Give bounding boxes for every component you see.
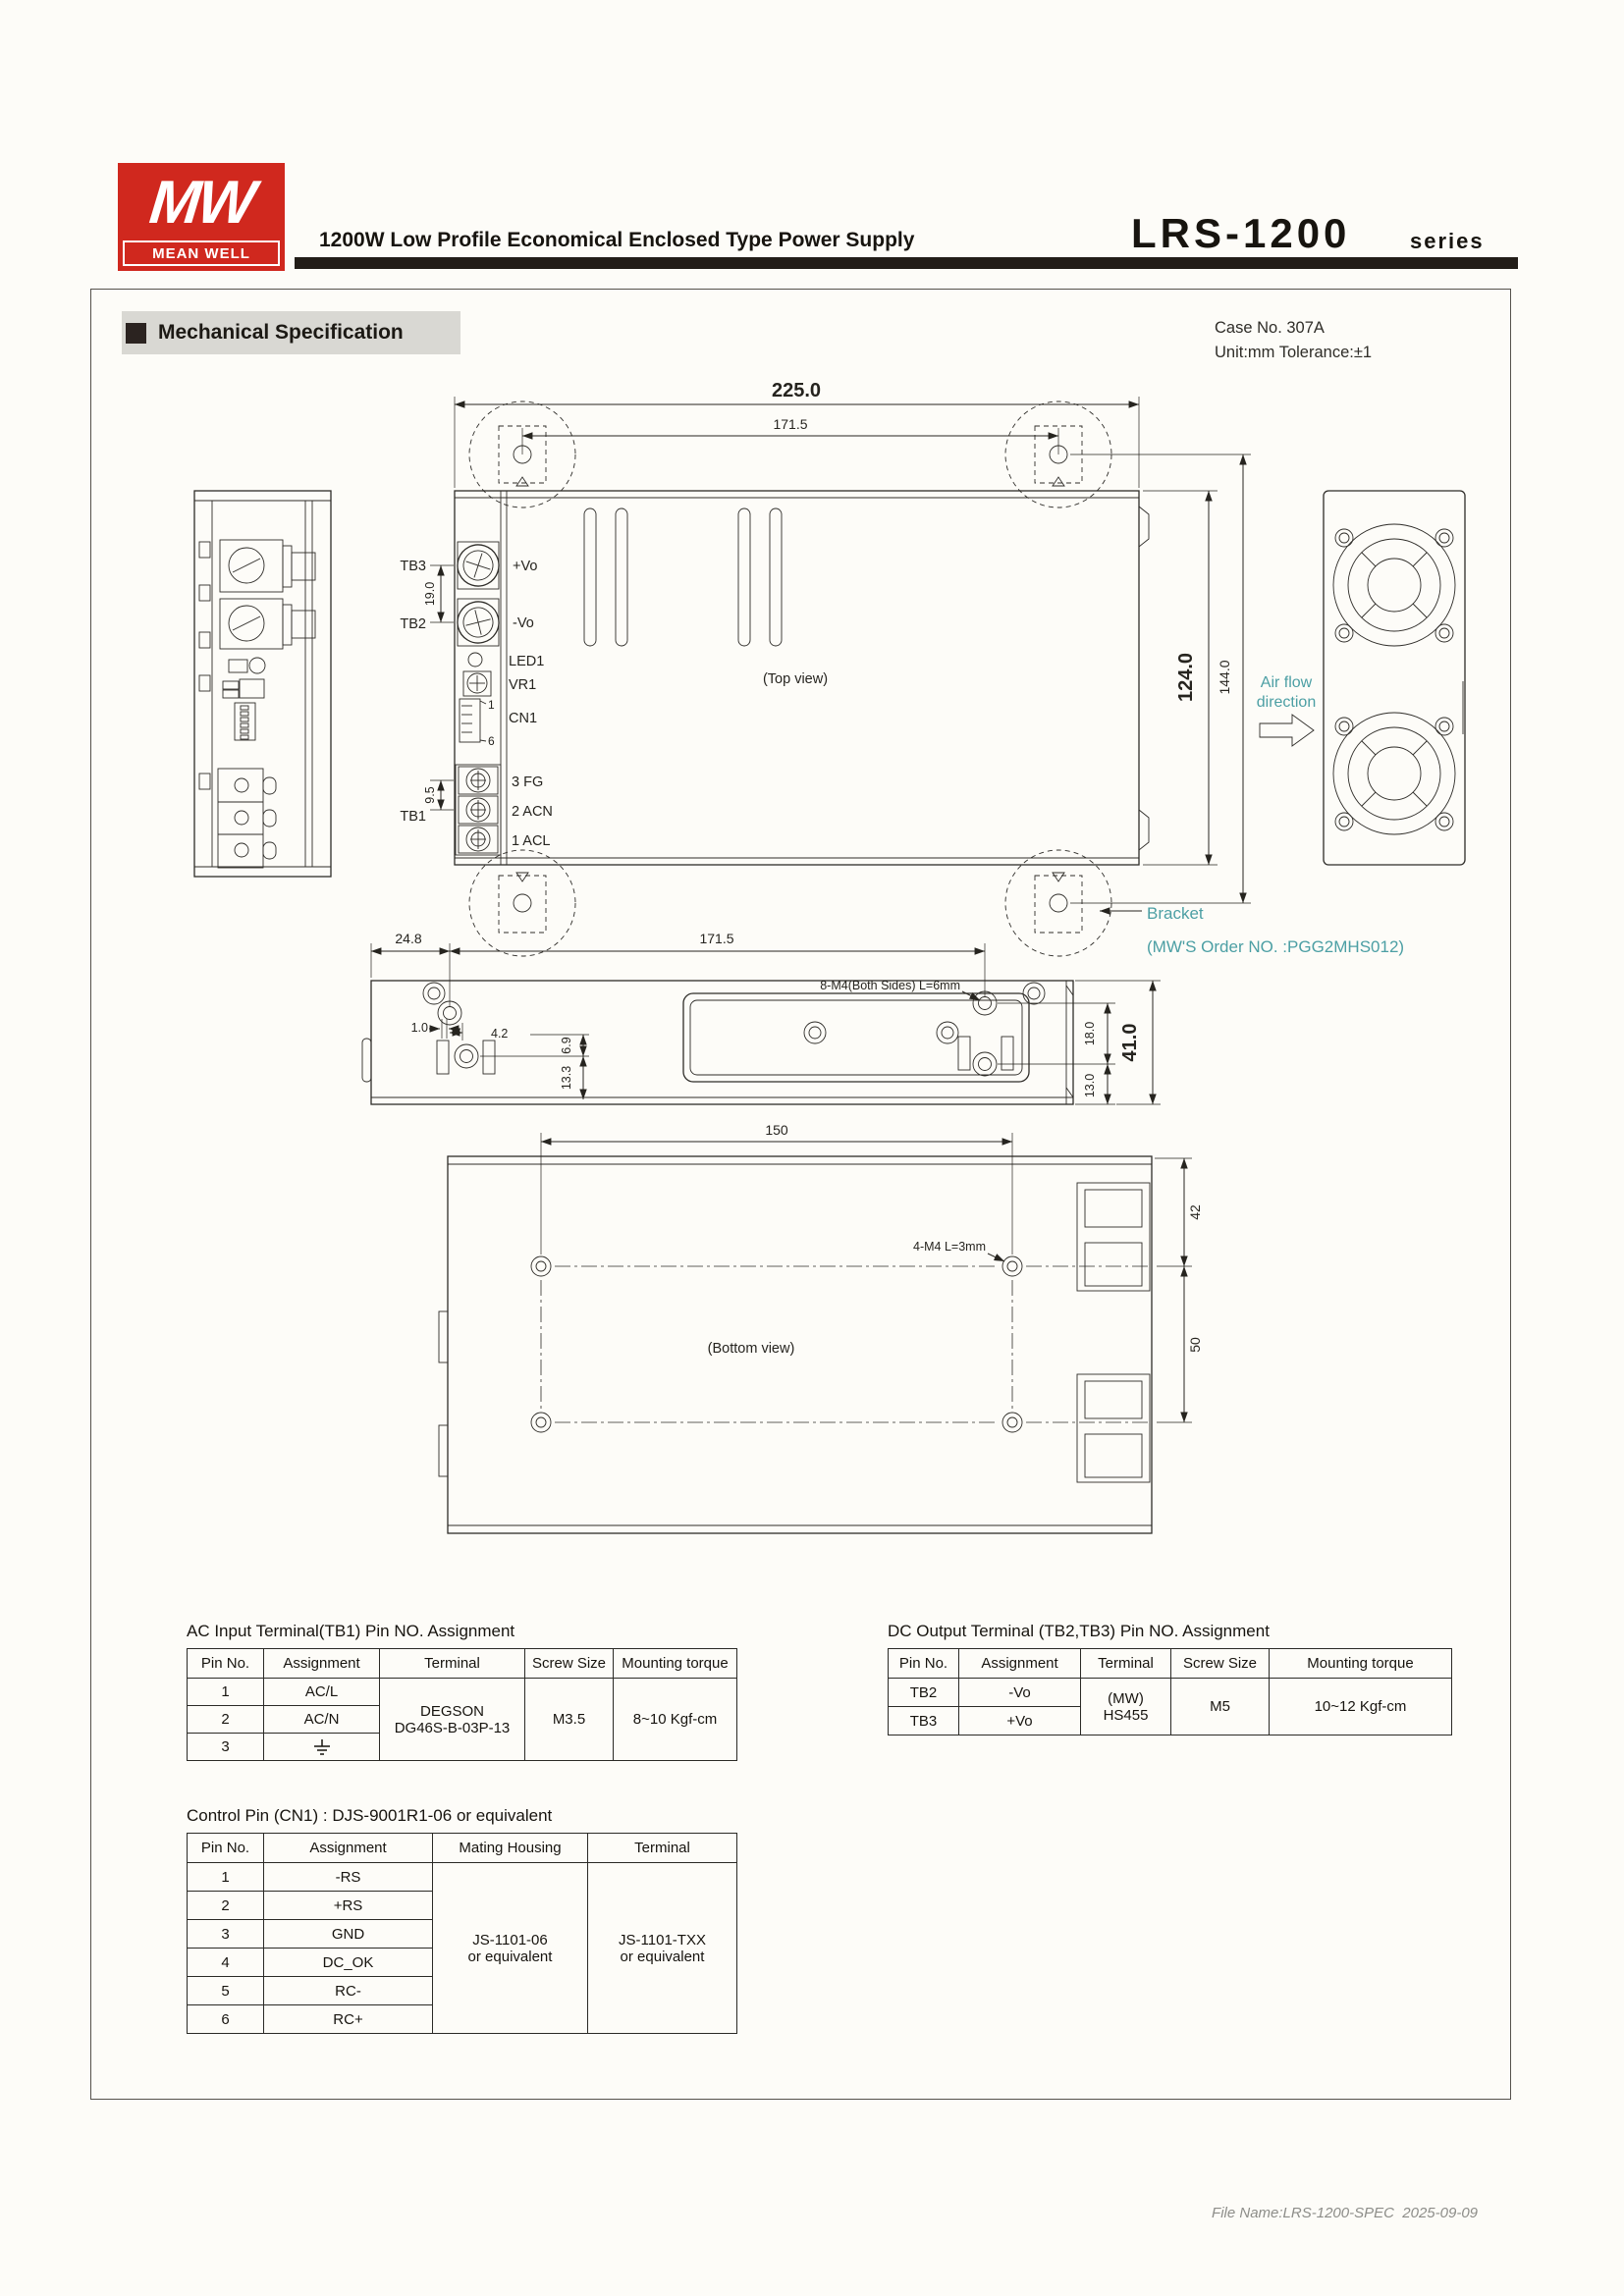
dim-50: 50 [1187, 1337, 1203, 1353]
left-end-view [194, 491, 331, 877]
dc-output-table: Pin No. Assignment Terminal Screw Size M… [888, 1648, 1452, 1735]
pin-no-cell: 1 [188, 1679, 264, 1706]
col-header: Assignment [264, 1834, 433, 1863]
bottom-view [439, 1156, 1152, 1533]
assignment-cell [264, 1734, 380, 1761]
mating-housing-cell: JS-1101-06 or equivalent [433, 1863, 588, 2034]
air-flow-label-1: Air flow [1261, 674, 1313, 691]
series-suffix: series [1410, 229, 1485, 254]
pin-no-cell: 3 [188, 1734, 264, 1761]
table-row: TB2 -Vo (MW) HS455 M5 10~12 Kgf-cm [889, 1679, 1452, 1707]
dim-41: 41.0 [1119, 1024, 1141, 1062]
terminal-line2: DG46S-B-03P-13 [382, 1720, 522, 1736]
col-header: Screw Size [525, 1649, 614, 1679]
pin-no-cell: 4 [188, 1949, 264, 1977]
tb3-label: TB3 [400, 559, 426, 574]
dim-150: 150 [765, 1122, 788, 1138]
col-header: Mounting torque [1270, 1649, 1452, 1679]
assignment-cell: DC_OK [264, 1949, 433, 1977]
dc-output-table-title: DC Output Terminal (TB2,TB3) Pin NO. Ass… [888, 1622, 1452, 1641]
torque-cell: 10~12 Kgf-cm [1270, 1679, 1452, 1735]
file-name-note: File Name:LRS-1200-SPEC 2025-09-09 [982, 2205, 1478, 2221]
assignment-cell: AC/L [264, 1679, 380, 1706]
col-header: Mounting torque [614, 1649, 737, 1679]
col-header: Assignment [264, 1649, 380, 1679]
dim-124: 124.0 [1175, 653, 1197, 702]
side-view-annotations: 24.8 171.5 8-M4(Both Sides) L=6mm 1.0 4.… [371, 931, 1161, 1104]
terminal-cell: JS-1101-TXX or equivalent [588, 1863, 737, 2034]
fan-end-view [1324, 491, 1465, 865]
pin-no-cell: 2 [188, 1892, 264, 1920]
dim-144: 144.0 [1217, 660, 1232, 694]
acn-label: 2 ACN [512, 804, 553, 820]
housing-line1: JS-1101-06 [435, 1932, 585, 1949]
table-row: 1 -RS JS-1101-06 or equivalent JS-1101-T… [188, 1863, 737, 1892]
pin-no-cell: 2 [188, 1706, 264, 1734]
cn1-pin6-label: 6 [488, 734, 495, 748]
bottom-view-annotations: 150 4-M4 L=3mm (Bottom view) 42 50 [541, 1122, 1203, 1422]
pin-no-cell: 1 [188, 1863, 264, 1892]
side-screw-note: 8-M4(Both Sides) L=6mm [820, 979, 960, 992]
tb2-label: TB2 [400, 616, 426, 632]
ac-input-table-title: AC Input Terminal(TB1) Pin NO. Assignmen… [187, 1622, 737, 1641]
bracket-label: Bracket [1147, 904, 1204, 923]
control-pin-table-section: Control Pin (CN1) : DJS-9001R1-06 or equ… [187, 1806, 737, 2034]
pin-no-cell: 3 [188, 1920, 264, 1949]
dim-4-2: 4.2 [491, 1027, 508, 1041]
mw-logo-letters: MW [114, 165, 289, 240]
mean-well-logo: MW MEAN WELL [118, 163, 285, 271]
dim-24-8: 24.8 [395, 931, 421, 946]
col-header: Pin No. [889, 1649, 959, 1679]
dim-19: 19.0 [423, 582, 437, 606]
pin-no-cell: 5 [188, 1977, 264, 2005]
air-flow-note: Air flow direction [1257, 674, 1316, 746]
dc-output-table-section: DC Output Terminal (TB2,TB3) Pin NO. Ass… [888, 1622, 1452, 1735]
col-header: Mating Housing [433, 1834, 588, 1863]
terminal-line1: (MW) [1083, 1690, 1168, 1707]
control-pin-table: Pin No. Assignment Mating Housing Termin… [187, 1833, 737, 2034]
assignment-cell: RC- [264, 1977, 433, 2005]
plus-vo-label: +Vo [513, 559, 537, 574]
bracket-order-number: (MW'S Order NO. :PGG2MHS012) [1147, 937, 1404, 956]
mean-well-wordmark: MEAN WELL [123, 240, 280, 266]
control-pin-table-title: Control Pin (CN1) : DJS-9001R1-06 or equ… [187, 1806, 737, 1826]
assignment-cell: -RS [264, 1863, 433, 1892]
dim-171-side: 171.5 [699, 931, 733, 946]
earth-ground-icon [311, 1738, 333, 1756]
air-flow-label-2: direction [1257, 694, 1316, 711]
dim-9-5: 9.5 [423, 786, 437, 803]
col-header: Terminal [1081, 1649, 1171, 1679]
ac-input-table: Pin No. Assignment Terminal Screw Size M… [187, 1648, 737, 1761]
assignment-cell: +Vo [959, 1707, 1081, 1735]
col-header: Pin No. [188, 1834, 264, 1863]
screw-size-cell: M5 [1171, 1679, 1270, 1735]
document-title: 1200W Low Profile Economical Enclosed Ty… [319, 229, 914, 252]
fg-label: 3 FG [512, 774, 543, 790]
cn1-label: CN1 [509, 711, 537, 726]
cn1-pin1-label: 1 [488, 698, 495, 712]
dim-1-0: 1.0 [411, 1021, 428, 1035]
led1-label: LED1 [509, 654, 544, 669]
mechanical-drawing: 225.0 171.5 TB3 TB2 19.0 +Vo -Vo LED1 VR… [90, 289, 1511, 1594]
air-flow-arrow-icon [1260, 715, 1314, 746]
torque-cell: 8~10 Kgf-cm [614, 1679, 737, 1761]
assignment-cell: +RS [264, 1892, 433, 1920]
ac-input-table-section: AC Input Terminal(TB1) Pin NO. Assignmen… [187, 1622, 737, 1761]
assignment-cell: AC/N [264, 1706, 380, 1734]
pin-no-cell: TB2 [889, 1679, 959, 1707]
bracket-callout: Bracket (MW'S Order NO. :PGG2MHS012) [1100, 904, 1404, 956]
dim-42: 42 [1187, 1204, 1203, 1220]
terminal-line2: or equivalent [590, 1949, 734, 1965]
table-row: 1 AC/L DEGSON DG46S-B-03P-13 M3.5 8~10 K… [188, 1679, 737, 1706]
dim-13-3: 13.3 [560, 1066, 573, 1090]
terminal-line1: DEGSON [382, 1703, 522, 1720]
terminal-line2: HS455 [1083, 1707, 1168, 1724]
tb1-label: TB1 [400, 809, 426, 825]
terminal-cell: DEGSON DG46S-B-03P-13 [380, 1679, 525, 1761]
datasheet-page: MW MEAN WELL 1200W Low Profile Economica… [0, 0, 1624, 2296]
side-view [362, 981, 1073, 1104]
col-header: Pin No. [188, 1649, 264, 1679]
dim-6-9: 6.9 [560, 1037, 573, 1053]
assignment-cell: RC+ [264, 2005, 433, 2034]
col-header: Terminal [588, 1834, 737, 1863]
dim-225: 225.0 [772, 380, 821, 401]
dim-13: 13.0 [1083, 1074, 1097, 1097]
top-view-caption: (Top view) [763, 671, 828, 687]
screw-size-cell: M3.5 [525, 1679, 614, 1761]
header-divider-bar [295, 257, 1518, 269]
dim-18: 18.0 [1083, 1022, 1097, 1045]
col-header: Assignment [959, 1649, 1081, 1679]
terminal-cell: (MW) HS455 [1081, 1679, 1171, 1735]
pin-no-cell: TB3 [889, 1707, 959, 1735]
housing-line2: or equivalent [435, 1949, 585, 1965]
dim-171-top: 171.5 [773, 416, 807, 432]
acl-label: 1 ACL [512, 833, 551, 849]
assignment-cell: -Vo [959, 1679, 1081, 1707]
pin-no-cell: 6 [188, 2005, 264, 2034]
bottom-screw-note: 4-M4 L=3mm [913, 1240, 986, 1254]
terminal-line1: JS-1101-TXX [590, 1932, 734, 1949]
series-name: LRS-1200 [1131, 210, 1350, 257]
col-header: Screw Size [1171, 1649, 1270, 1679]
vr1-label: VR1 [509, 677, 536, 693]
bottom-view-caption: (Bottom view) [708, 1341, 795, 1357]
col-header: Terminal [380, 1649, 525, 1679]
assignment-cell: GND [264, 1920, 433, 1949]
minus-vo-label: -Vo [513, 615, 534, 631]
top-view-annotations: 225.0 171.5 TB3 TB2 19.0 +Vo -Vo LED1 VR… [400, 380, 1251, 903]
